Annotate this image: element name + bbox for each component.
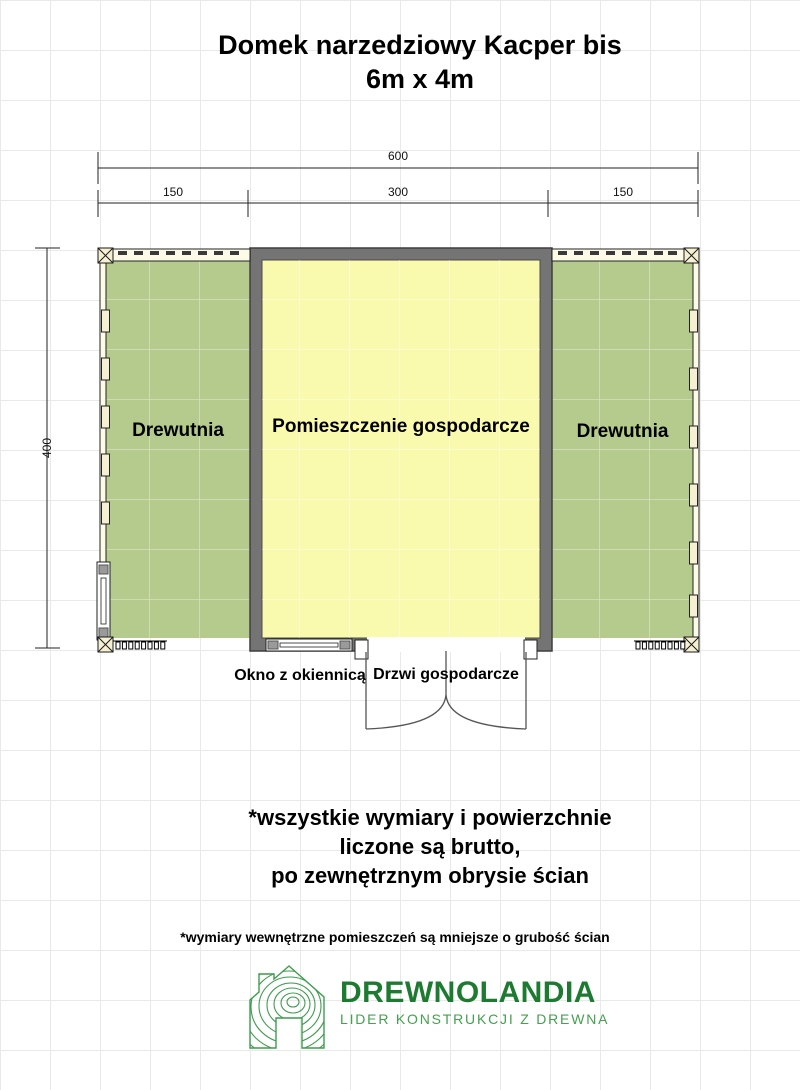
room-left-drewutnia <box>106 258 250 638</box>
brand-tagline: LIDER KONSTRUKCJI Z DREWNA <box>340 1011 760 1027</box>
floor-plan-drawing <box>0 0 800 1090</box>
slat-wall-top-left <box>112 249 250 261</box>
brand-name: DREWNOLANDIA <box>340 978 760 1008</box>
threshold-comb-right <box>634 641 686 649</box>
room-label-center: Pomieszczenie gospodarcze <box>258 416 544 438</box>
room-center-gospodarcze <box>250 248 552 651</box>
note-small: *wymiary wewnętrzne pomieszczeń są mniej… <box>0 929 790 945</box>
drawing-title: Domek narzedziowy Kacper bis 6m x 4m <box>40 28 800 96</box>
dim-left-segment: 150 <box>98 186 248 198</box>
note-line-3: po zewnętrznym obrysie ścian <box>60 861 800 890</box>
dim-center-segment: 300 <box>248 186 548 198</box>
room-right-drewutnia <box>552 258 693 638</box>
threshold-comb-left <box>113 641 167 649</box>
title-line-1: Domek narzedziowy Kacper bis <box>40 28 800 62</box>
title-line-2: 6m x 4m <box>40 62 800 96</box>
room-label-right: Drewutnia <box>552 421 693 443</box>
notes-main: *wszystkie wymiary i powierzchnie liczon… <box>60 803 800 890</box>
left-wall-window <box>97 562 110 640</box>
drewnolandia-logo-text: DREWNOLANDIA LIDER KONSTRUKCJI Z DREWNA <box>340 978 760 1027</box>
note-line-2: liczone są brutto, <box>60 832 800 861</box>
drewnolandia-logo-icon <box>243 960 329 1050</box>
slat-wall-top-right <box>552 249 686 261</box>
room-label-left: Drewutnia <box>106 420 250 442</box>
note-line-1: *wszystkie wymiary i powierzchnie <box>60 803 800 832</box>
dim-height: 400 <box>41 288 53 608</box>
floor-plan-sheet: Domek narzedziowy Kacper bis 6m x 4m 600… <box>0 0 800 1090</box>
window-with-shutter <box>266 639 352 651</box>
door-swing <box>366 651 526 729</box>
door-annotation: Drzwi gospodarcze <box>336 666 556 684</box>
dim-total-width: 600 <box>98 150 698 162</box>
dim-right-segment: 150 <box>548 186 698 198</box>
